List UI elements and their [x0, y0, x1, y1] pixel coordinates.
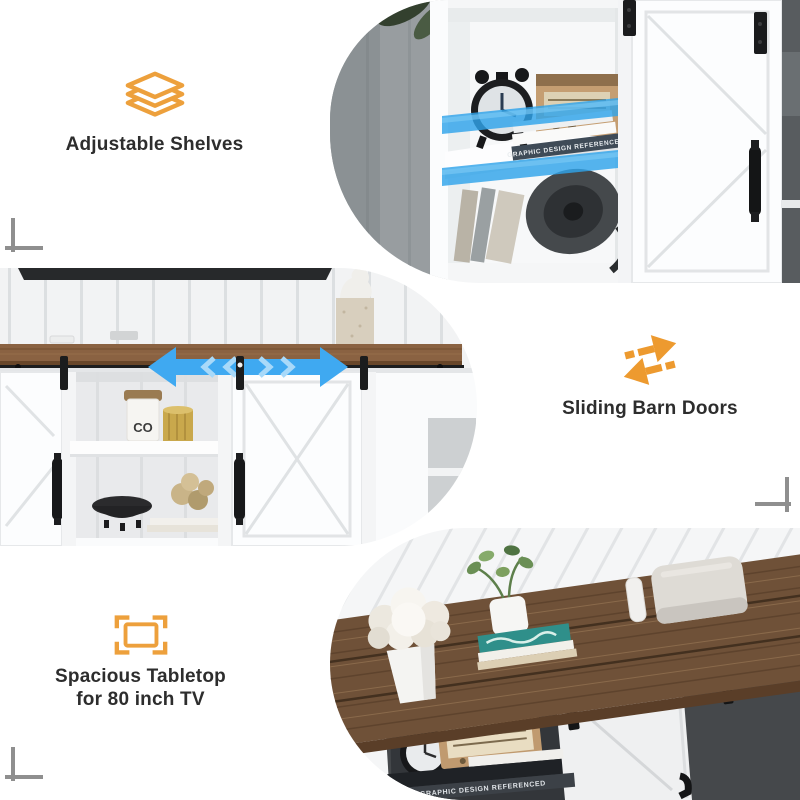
gold-cup — [163, 406, 193, 441]
shelf-books — [147, 518, 222, 532]
corner-mark-left-upper — [0, 214, 48, 254]
sliding-arrows-icon — [617, 330, 683, 390]
corner-mark-left-lower — [0, 743, 48, 783]
photo-shelves-closeup: GRAPHIC DESIGN REFERENCED — [330, 0, 800, 283]
barn-door — [623, 0, 782, 283]
caption-line-1: Spacious Tabletop — [55, 665, 226, 688]
feature-caption: Spacious Tabletop for 80 inch TV — [55, 665, 226, 711]
open-compartment: CO — [70, 372, 222, 538]
feature-sliding-barn-doors: Sliding Barn Doors — [540, 330, 760, 420]
canister: CO — [124, 390, 162, 441]
shelves-closeup-scene: GRAPHIC DESIGN REFERENCED — [330, 0, 800, 283]
tabletop-size-icon — [112, 612, 170, 658]
door-handle — [234, 453, 245, 525]
corner-mark-right — [748, 473, 796, 513]
canister-label: CO — [133, 420, 153, 435]
feature-spacious-tabletop: Spacious Tabletop for 80 inch TV — [38, 612, 243, 711]
tabletop-scene: GRAPHIC DESIGN REFERENCED — [330, 528, 800, 800]
feature-caption: Adjustable Shelves — [66, 133, 244, 156]
feature-caption: Sliding Barn Doors — [562, 397, 738, 420]
tv-bottom-edge — [18, 268, 332, 280]
photo-sliding-doors-front: CO — [0, 268, 477, 546]
left-barn-door — [0, 372, 63, 546]
door-handle — [52, 453, 63, 525]
right-barn-door — [232, 372, 362, 546]
stacked-shelves-icon — [124, 70, 186, 126]
sliding-doors-scene: CO — [0, 268, 477, 546]
door-handle — [749, 140, 761, 222]
right-dark-compartment — [782, 0, 800, 283]
feature-adjustable-shelves: Adjustable Shelves — [52, 70, 257, 156]
caption-line-2: for 80 inch TV — [55, 688, 226, 711]
middle-shelf — [70, 441, 222, 457]
photo-tabletop-overview: GRAPHIC DESIGN REFERENCED — [330, 528, 800, 800]
product-infographic: GRAPHIC DESIGN REFERENCED — [0, 0, 800, 800]
